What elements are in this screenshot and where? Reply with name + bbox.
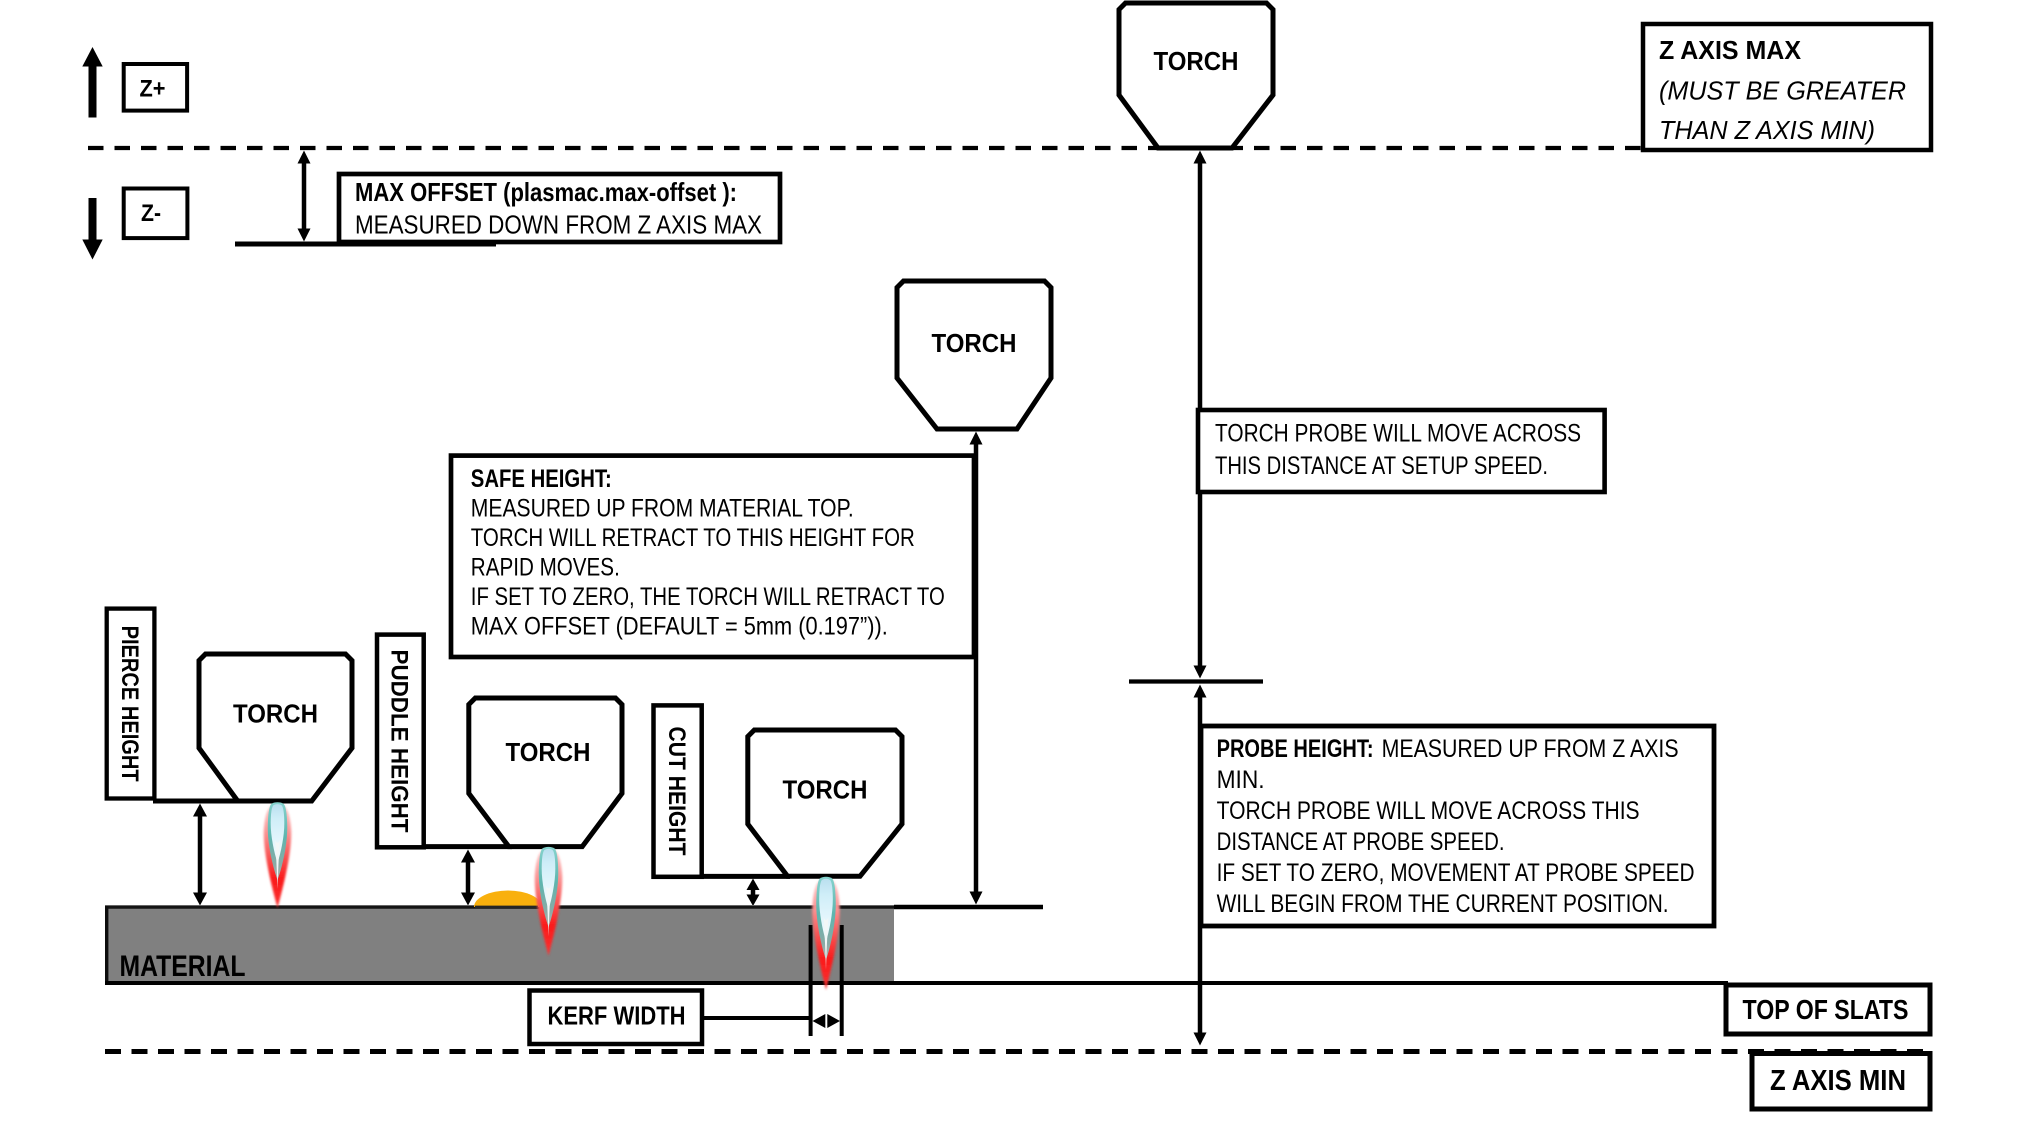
svg-text:CUT HEIGHT: CUT HEIGHT (663, 727, 690, 856)
svg-text:TORCH: TORCH (783, 774, 868, 804)
svg-text:TORCH: TORCH (233, 698, 318, 728)
svg-text:MEASURED UP FROM Z AXIS: MEASURED UP FROM Z AXIS (1382, 735, 1679, 763)
svg-text:MAX OFFSET (DEFAULT = 5mm (0.1: MAX OFFSET (DEFAULT = 5mm (0.197”)). (471, 613, 888, 641)
svg-text:Z AXIS MIN: Z AXIS MIN (1770, 1065, 1906, 1097)
svg-text:(MUST BE GREATER: (MUST BE GREATER (1659, 76, 1906, 106)
svg-text:DISTANCE AT PROBE SPEED.: DISTANCE AT PROBE SPEED. (1217, 828, 1505, 856)
svg-text:Z AXIS MAX: Z AXIS MAX (1659, 35, 1802, 65)
svg-text:MEASURED DOWN FROM Z AXIS MAX: MEASURED DOWN FROM Z AXIS MAX (355, 210, 762, 240)
svg-text:WILL BEGIN FROM THE CURRENT PO: WILL BEGIN FROM THE CURRENT POSITION. (1217, 890, 1669, 918)
svg-text:MAX OFFSET (plasmac.max-offset: MAX OFFSET (plasmac.max-offset ): (355, 177, 737, 207)
svg-text:Z+: Z+ (140, 76, 166, 103)
svg-text:IF SET TO ZERO, THE TORCH WILL: IF SET TO ZERO, THE TORCH WILL RETRACT T… (471, 583, 945, 611)
svg-text:MEASURED UP FROM MATERIAL TOP.: MEASURED UP FROM MATERIAL TOP. (471, 495, 854, 523)
svg-text:PIERCE HEIGHT: PIERCE HEIGHT (116, 626, 143, 782)
svg-text:THAN Z AXIS MIN): THAN Z AXIS MIN) (1659, 115, 1875, 145)
svg-text:TORCH: TORCH (932, 328, 1017, 358)
svg-text:SAFE HEIGHT:: SAFE HEIGHT: (471, 465, 612, 493)
svg-text:KERF WIDTH: KERF WIDTH (548, 1001, 686, 1031)
svg-text:TORCH PROBE WILL MOVE ACROSS: TORCH PROBE WILL MOVE ACROSS (1215, 420, 1581, 448)
svg-text:Z-: Z- (141, 200, 161, 227)
svg-text:RAPID MOVES.: RAPID MOVES. (471, 554, 620, 582)
svg-text:THIS DISTANCE AT SETUP SPEED.: THIS DISTANCE AT SETUP SPEED. (1215, 452, 1548, 480)
svg-text:TOP OF SLATS: TOP OF SLATS (1743, 994, 1909, 1025)
svg-text:MATERIAL: MATERIAL (120, 950, 246, 983)
svg-text:PROBE HEIGHT:: PROBE HEIGHT: (1217, 735, 1374, 763)
svg-text:TORCH: TORCH (1154, 46, 1239, 76)
svg-text:MIN.: MIN. (1217, 766, 1265, 794)
svg-text:TORCH PROBE WILL MOVE ACROSS T: TORCH PROBE WILL MOVE ACROSS THIS (1217, 797, 1640, 825)
svg-text:PUDDLE HEIGHT: PUDDLE HEIGHT (386, 650, 413, 833)
svg-text:TORCH WILL RETRACT TO THIS HEI: TORCH WILL RETRACT TO THIS HEIGHT FOR (471, 524, 915, 552)
svg-text:TORCH: TORCH (506, 737, 591, 767)
svg-text:IF SET TO ZERO, MOVEMENT AT P: IF SET TO ZERO, MOVEMENT AT PROBE SPEED (1217, 859, 1695, 887)
